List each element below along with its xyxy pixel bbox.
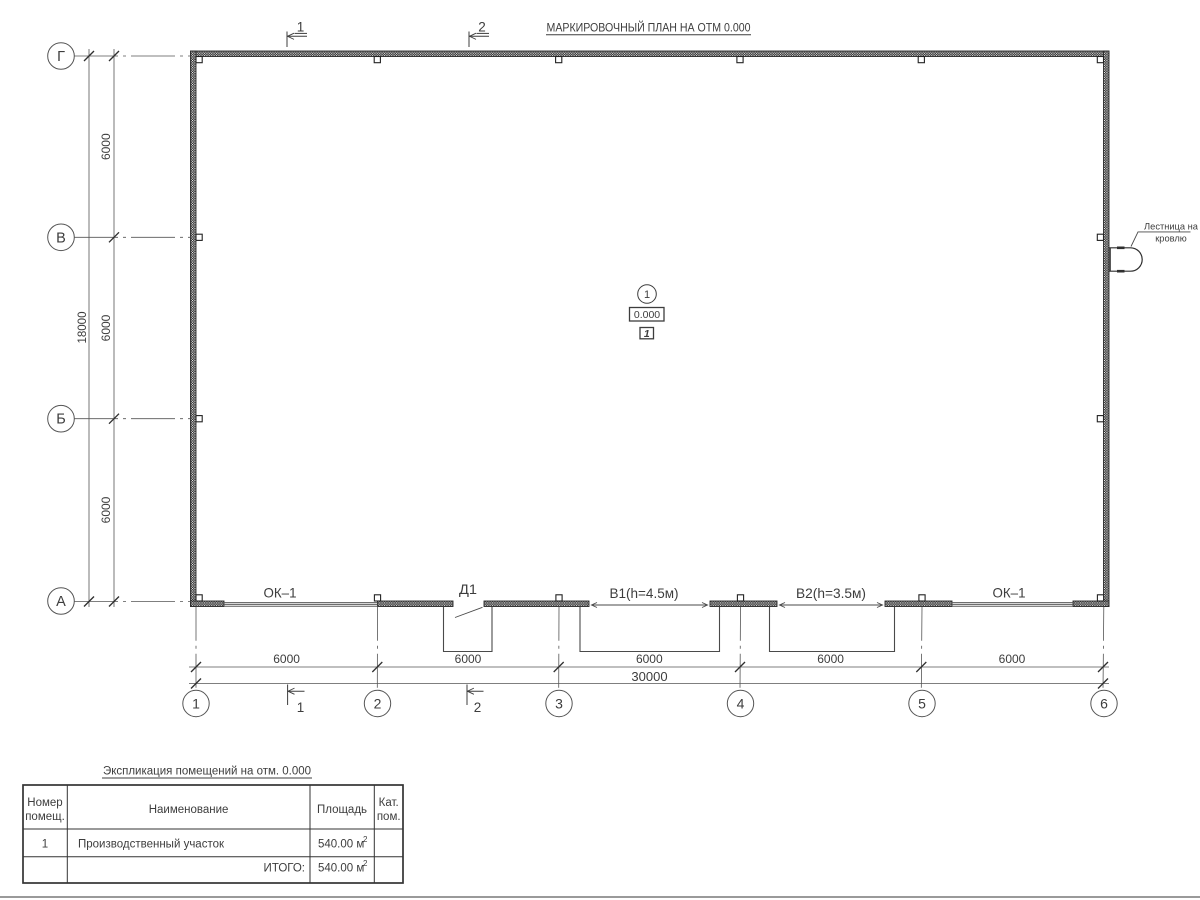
svg-text:540.00 м: 540.00 м: [318, 839, 364, 851]
svg-text:Лестница на: Лестница на: [1144, 222, 1199, 232]
svg-text:ОК–1: ОК–1: [993, 585, 1026, 601]
svg-text:6000: 6000: [455, 652, 482, 666]
svg-text:1: 1: [297, 700, 305, 715]
svg-text:6000: 6000: [817, 652, 844, 666]
svg-text:В1(h=4.5м): В1(h=4.5м): [610, 585, 679, 601]
svg-text:6000: 6000: [636, 652, 663, 666]
svg-text:2: 2: [363, 859, 368, 868]
svg-text:6000: 6000: [999, 652, 1026, 666]
svg-text:1: 1: [297, 20, 305, 35]
svg-text:6000: 6000: [99, 496, 113, 523]
svg-text:Площадь: Площадь: [317, 804, 367, 816]
svg-text:2: 2: [478, 20, 486, 35]
svg-text:Б: Б: [56, 412, 66, 428]
svg-text:5: 5: [918, 696, 926, 712]
svg-text:Д1: Д1: [459, 581, 477, 597]
svg-text:18000: 18000: [77, 312, 89, 344]
svg-text:1: 1: [42, 839, 48, 851]
svg-text:4: 4: [737, 696, 745, 712]
svg-text:кровлю: кровлю: [1155, 234, 1187, 244]
svg-text:Г: Г: [57, 49, 65, 65]
svg-text:1: 1: [644, 289, 650, 301]
svg-text:6000: 6000: [99, 133, 113, 160]
svg-text:30000: 30000: [631, 669, 667, 684]
svg-text:1: 1: [192, 696, 200, 712]
svg-text:МАРКИРОВОЧНЫЙ ПЛАН НА ОТМ 0.00: МАРКИРОВОЧНЫЙ ПЛАН НА ОТМ 0.000: [547, 20, 751, 35]
svg-text:А: А: [56, 594, 66, 610]
svg-text:помещ.: помещ.: [25, 811, 65, 823]
svg-text:ИТОГО:: ИТОГО:: [264, 863, 305, 875]
svg-text:6000: 6000: [273, 652, 300, 666]
svg-text:Производственный участок: Производственный участок: [78, 839, 225, 851]
svg-text:В: В: [56, 230, 66, 246]
svg-text:Номер: Номер: [27, 797, 62, 809]
svg-text:2: 2: [474, 700, 482, 715]
svg-text:Наименование: Наименование: [149, 804, 229, 816]
svg-text:3: 3: [555, 696, 563, 712]
svg-text:6000: 6000: [99, 314, 113, 341]
svg-text:540.00 м: 540.00 м: [318, 863, 364, 875]
svg-text:6: 6: [1100, 696, 1108, 712]
svg-text:0.000: 0.000: [634, 309, 660, 321]
svg-text:Кат.: Кат.: [379, 797, 399, 809]
svg-text:2: 2: [363, 835, 368, 844]
svg-text:1: 1: [644, 328, 650, 340]
svg-text:Экспликация помещений на отм.: Экспликация помещений на отм. 0.000: [103, 766, 311, 778]
svg-text:ОК–1: ОК–1: [264, 585, 297, 601]
svg-text:2: 2: [374, 696, 382, 712]
svg-text:В2(h=3.5м): В2(h=3.5м): [796, 585, 866, 601]
svg-text:пом.: пом.: [377, 811, 401, 823]
